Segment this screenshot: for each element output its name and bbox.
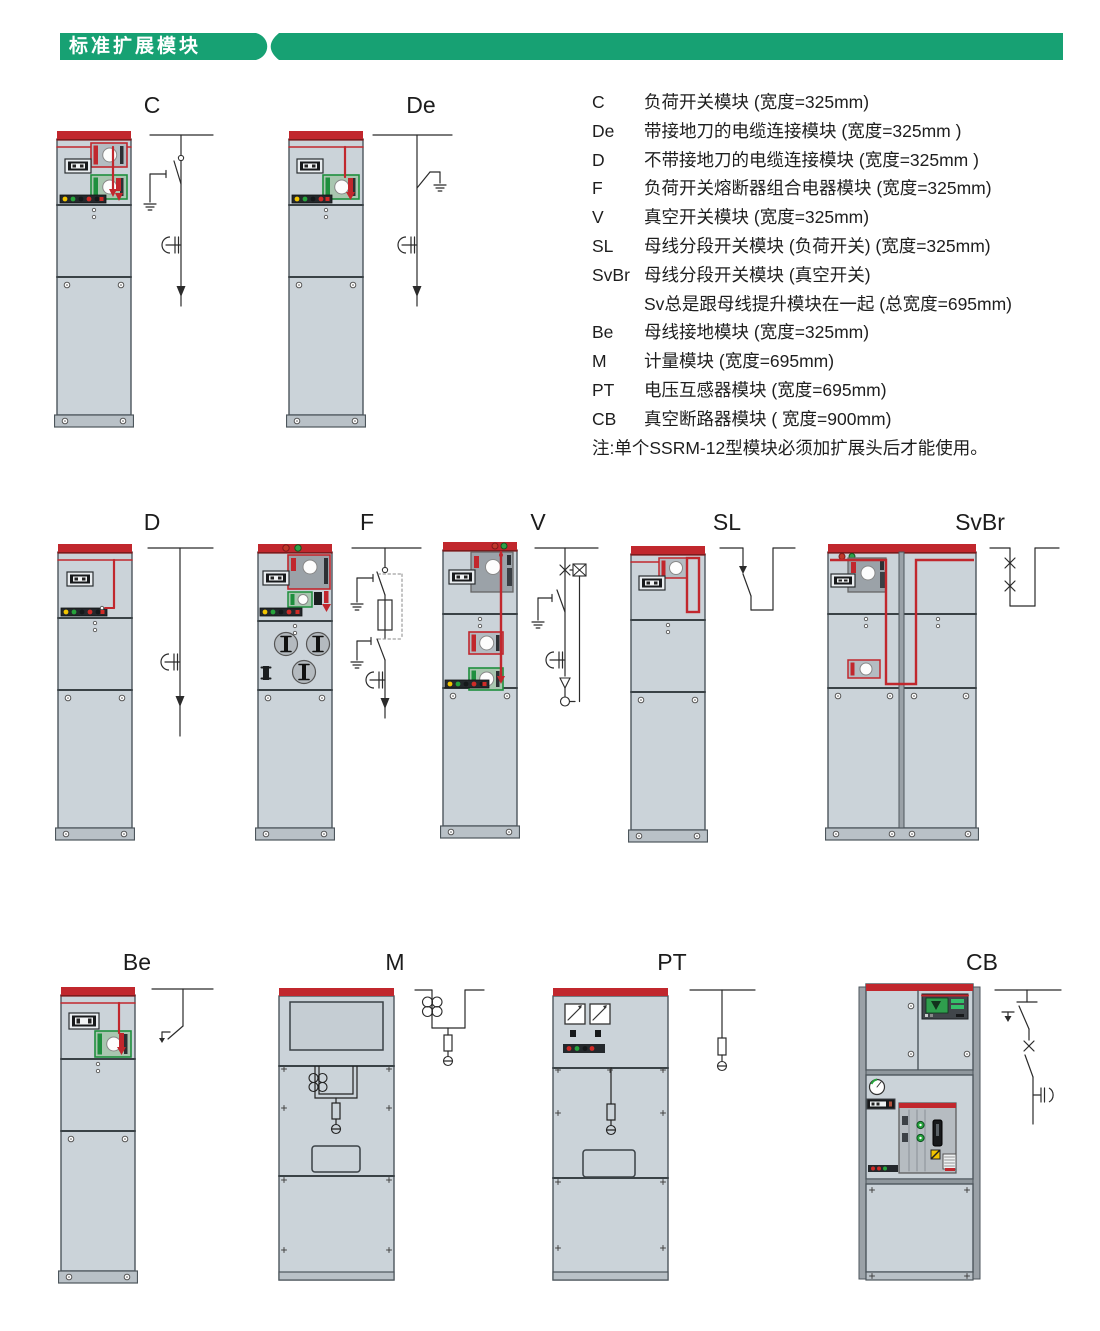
- circuit-diagram-f: [345, 540, 430, 725]
- cabinet-drawing-svbr: [825, 542, 979, 846]
- legend-key: PT: [592, 376, 644, 405]
- legend-key: SvBr: [592, 261, 644, 290]
- legend-desc: 母线接地模块 (宽度=325mm): [644, 318, 1087, 347]
- module-label-pt: PT: [650, 949, 694, 976]
- legend-key: De: [592, 117, 644, 146]
- legend-desc: 不带接地刀的电缆连接模块 (宽度=325mm ): [644, 146, 1087, 175]
- legend-row: M计量模块 (宽度=695mm): [592, 347, 1087, 376]
- circuit-diagram-svbr: [985, 540, 1070, 620]
- circuit-diagram-be: [145, 982, 220, 1057]
- legend-key: SL: [592, 232, 644, 261]
- circuit-diagram-de: [365, 128, 460, 318]
- module-label-svbr: SvBr: [950, 509, 1010, 536]
- cabinet-drawing-sl: [628, 544, 708, 848]
- legend-desc: 母线分段开关模块 (负荷开关) (宽度=325mm): [644, 232, 1087, 261]
- legend-desc: 电压互感器模块 (宽度=695mm): [644, 376, 1087, 405]
- legend-row: V真空开关模块 (宽度=325mm): [592, 203, 1087, 232]
- circuit-diagram-m: [410, 982, 490, 1082]
- module-label-be: Be: [115, 949, 159, 976]
- cabinet-drawing-c: [54, 129, 134, 433]
- cabinet-drawing-m: [276, 986, 397, 1290]
- legend-row: Sv总是跟母线提升模块在一起 (总宽度=695mm): [592, 290, 1087, 319]
- legend-row: CB真空断路器模块 ( 宽度=900mm): [592, 405, 1087, 434]
- legend-row: PT电压互感器模块 (宽度=695mm): [592, 376, 1087, 405]
- cabinet-drawing-f: [255, 542, 335, 846]
- legend-key: D: [592, 146, 644, 175]
- legend-key: C: [592, 88, 644, 117]
- module-label-v: V: [518, 509, 558, 536]
- legend-key: Be: [592, 318, 644, 347]
- legend-row: C负荷开关模块 (宽度=325mm): [592, 88, 1087, 117]
- legend-row: D不带接地刀的电缆连接模块 (宽度=325mm ): [592, 146, 1087, 175]
- circuit-diagram-d: [140, 540, 220, 745]
- legend-row: De带接地刀的电缆连接模块 (宽度=325mm ): [592, 117, 1087, 146]
- cabinet-drawing-pt: [550, 986, 671, 1290]
- legend-key: CB: [592, 405, 644, 434]
- circuit-diagram-pt: [685, 982, 760, 1082]
- catalog-page: 标准扩展模块 C负荷开关模块 (宽度=325mm) De带接地刀的电缆连接模块 …: [0, 0, 1100, 1331]
- module-label-de: De: [399, 92, 443, 119]
- legend-row: SvBr母线分段开关模块 (真空开关): [592, 261, 1087, 290]
- module-label-cb: CB: [960, 949, 1004, 976]
- circuit-diagram-v: [528, 540, 608, 725]
- legend-desc: 母线分段开关模块 (真空开关): [644, 261, 1087, 290]
- circuit-diagram-c: [140, 128, 220, 318]
- cabinet-drawing-be: [58, 985, 138, 1289]
- cabinet-drawing-de: [286, 129, 366, 433]
- banner-notch-shape: [246, 33, 292, 60]
- section-banner: 标准扩展模块: [60, 33, 1063, 60]
- cabinet-drawing-cb: [856, 982, 983, 1286]
- module-label-m: M: [375, 949, 415, 976]
- legend-list: C负荷开关模块 (宽度=325mm) De带接地刀的电缆连接模块 (宽度=325…: [592, 88, 1087, 462]
- module-label-d: D: [132, 509, 172, 536]
- cabinet-drawing-v: [440, 540, 520, 844]
- legend-key: [592, 290, 644, 319]
- legend-key: M: [592, 347, 644, 376]
- legend-desc: 真空开关模块 (宽度=325mm): [644, 203, 1087, 232]
- legend-row: F负荷开关熔断器组合电器模块 (宽度=325mm): [592, 174, 1087, 203]
- legend-row: SL母线分段开关模块 (负荷开关) (宽度=325mm): [592, 232, 1087, 261]
- circuit-diagram-sl: [715, 540, 800, 620]
- legend-desc: 计量模块 (宽度=695mm): [644, 347, 1087, 376]
- legend-row: Be母线接地模块 (宽度=325mm): [592, 318, 1087, 347]
- legend-note: 注:单个SSRM-12型模块必须加扩展头后才能使用。: [592, 434, 1087, 463]
- legend-desc: 负荷开关熔断器组合电器模块 (宽度=325mm): [644, 174, 1087, 203]
- legend-desc: 负荷开关模块 (宽度=325mm): [644, 88, 1087, 117]
- legend-key: V: [592, 203, 644, 232]
- circuit-diagram-cb: [988, 982, 1068, 1132]
- module-label-c: C: [132, 92, 172, 119]
- section-title: 标准扩展模块: [69, 33, 201, 60]
- legend-desc: 带接地刀的电缆连接模块 (宽度=325mm ): [644, 117, 1087, 146]
- legend-desc: Sv总是跟母线提升模块在一起 (总宽度=695mm): [644, 290, 1087, 319]
- module-label-f: F: [347, 509, 387, 536]
- legend-desc: 真空断路器模块 ( 宽度=900mm): [644, 405, 1087, 434]
- legend-key: F: [592, 174, 644, 203]
- cabinet-drawing-d: [55, 542, 135, 846]
- module-label-sl: SL: [705, 509, 749, 536]
